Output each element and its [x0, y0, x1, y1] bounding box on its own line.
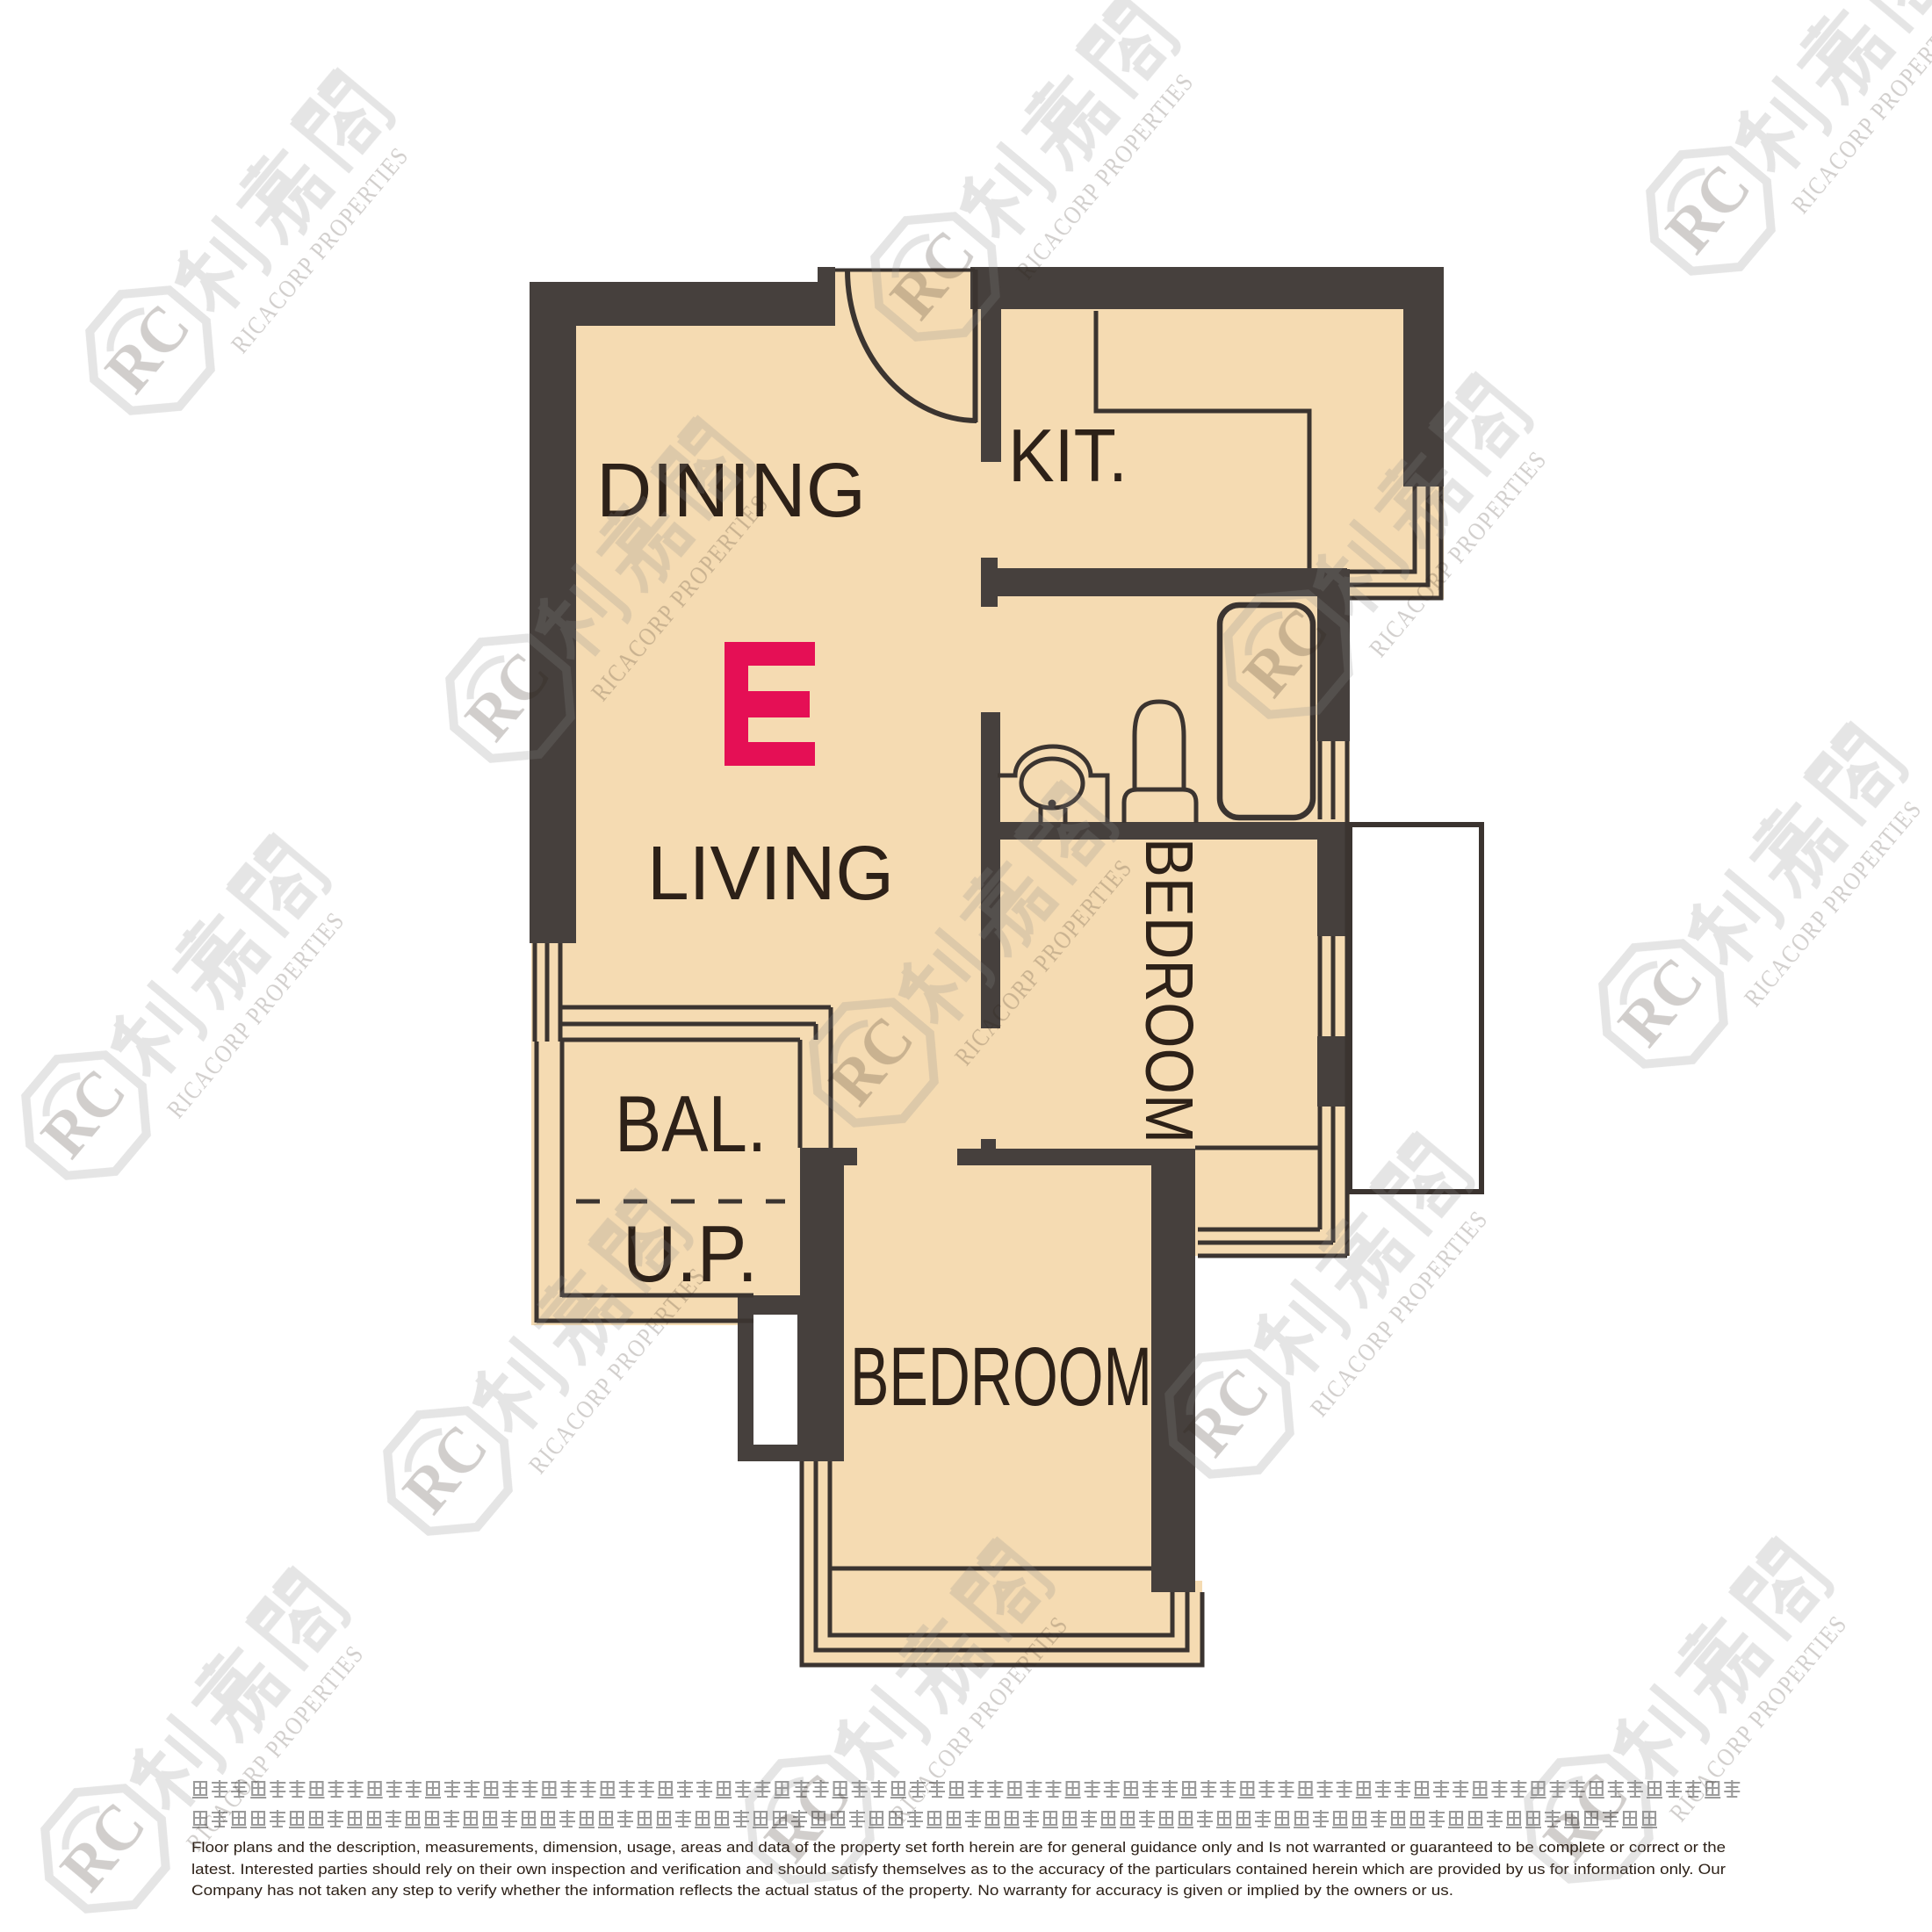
svg-text:latest. Interested parties sho: latest. Interested parties should rely o…	[191, 1861, 1726, 1878]
svg-text:LIVING: LIVING	[647, 831, 894, 916]
svg-text:BAL.: BAL.	[615, 1080, 767, 1169]
svg-text:Company has not taken any step: Company has not taken any step to verify…	[191, 1882, 1453, 1899]
svg-text:BEDROOM: BEDROOM	[850, 1330, 1152, 1424]
svg-text:BEDROOM: BEDROOM	[1131, 838, 1207, 1143]
svg-text:Floor plans and the descriptio: Floor plans and the description, measure…	[191, 1839, 1726, 1856]
svg-text:KIT.: KIT.	[1008, 415, 1128, 498]
